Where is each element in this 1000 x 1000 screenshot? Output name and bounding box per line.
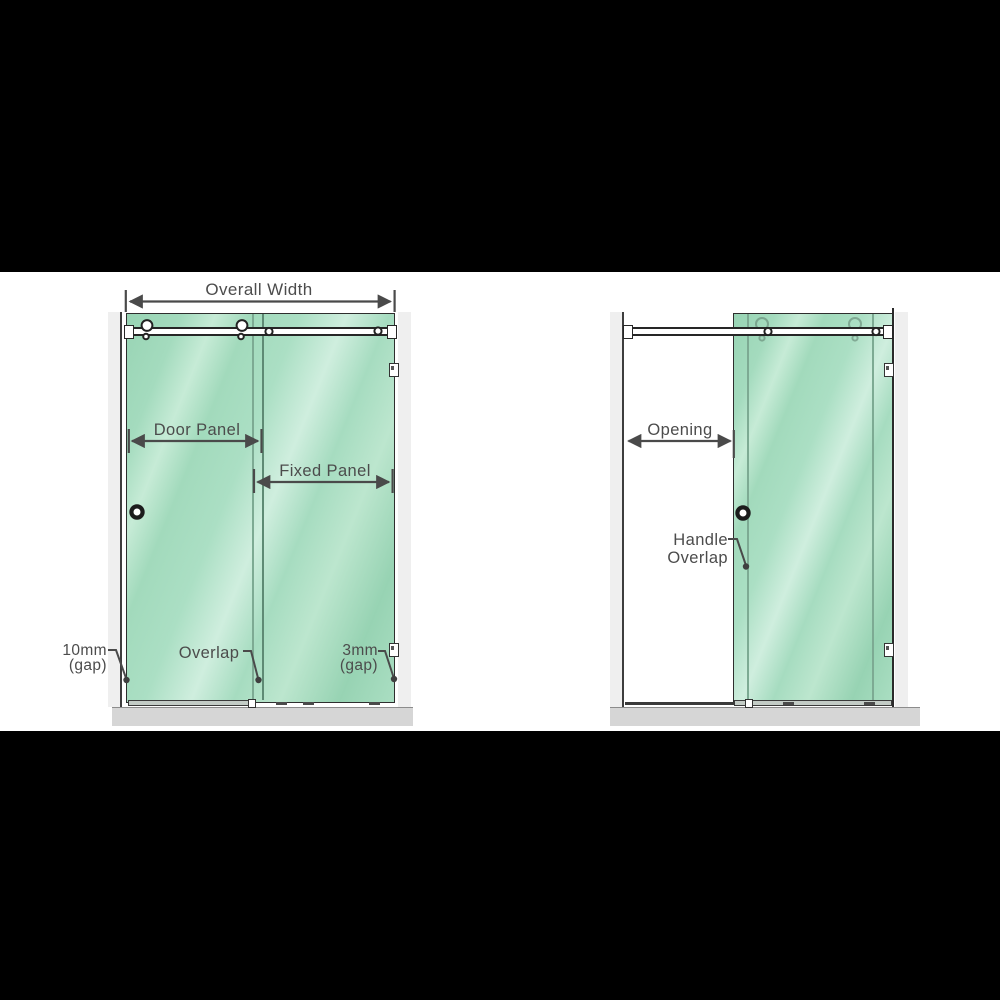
rail-mount-icon xyxy=(872,328,879,335)
leader-handle-overlap xyxy=(728,539,746,564)
door-roller-icon xyxy=(237,320,248,331)
gap-10mm-label: 10mm (gap) xyxy=(50,643,107,673)
handle-overlap-label: Handle Overlap xyxy=(640,531,728,567)
door-roller-icon xyxy=(142,320,153,331)
letterbox-bottom xyxy=(0,731,1000,1000)
fixed-panel-label: Fixed Panel xyxy=(279,462,371,481)
rail-mount-icon xyxy=(764,328,771,335)
shower-door-diagram: Overall Width Door Panel Fixed Panel 10m… xyxy=(0,0,1000,1000)
leader-10mm-gap xyxy=(108,650,126,678)
leader-3mm-gap xyxy=(378,651,394,677)
rail-mount-icon xyxy=(374,327,381,334)
gap-3mm-label: 3mm (gap) xyxy=(325,643,378,673)
opening-label: Opening xyxy=(647,421,712,440)
rail-mount-icon xyxy=(265,328,272,335)
door-panel-label: Door Panel xyxy=(154,421,241,440)
leader-overlap xyxy=(243,651,258,678)
handle-knob-icon xyxy=(131,506,142,517)
letterbox-top xyxy=(0,0,1000,272)
overlap-label: Overlap xyxy=(179,644,240,663)
overall-width-label: Overall Width xyxy=(205,280,312,300)
roller-pin-icon xyxy=(143,334,149,340)
roller-pin-icon xyxy=(238,334,244,340)
handle-knob-icon xyxy=(737,507,748,518)
